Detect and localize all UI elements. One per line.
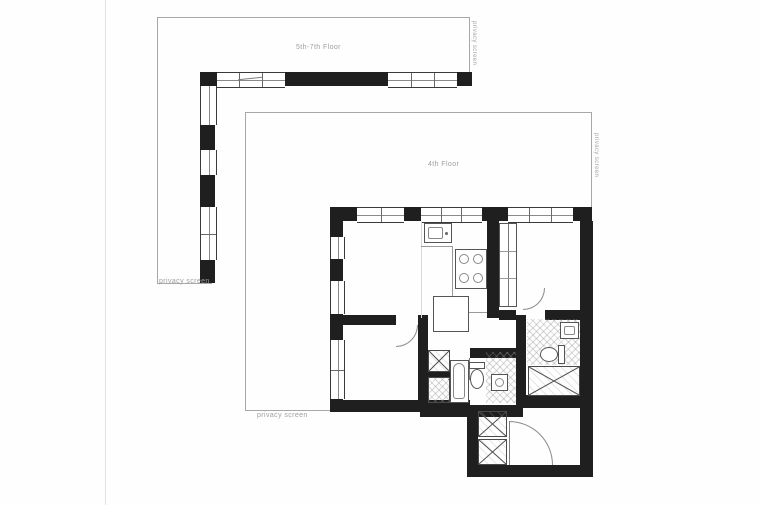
privacy-screen-label-terrace-bottom: privacy screen [159, 278, 210, 285]
floor4-outline-top [245, 112, 592, 113]
unit-wall-bottom-shower [523, 395, 593, 408]
partition-kitchen-bedroom [487, 221, 499, 318]
partition-living-bed2 [330, 315, 396, 325]
window-band [330, 281, 345, 314]
wardrobe-icon [499, 223, 517, 307]
storage-closet-icon [428, 377, 450, 403]
ensuite-toilet-icon [540, 347, 558, 362]
partition-bath-ensuite [516, 315, 526, 407]
entry-closet-icon [478, 439, 507, 465]
terrace-outline-right [469, 17, 470, 73]
wall-segment [200, 72, 217, 86]
floor4-outline-right [591, 112, 592, 222]
entry-door-swing-icon [509, 421, 553, 465]
floor4-outline-left [245, 112, 246, 410]
vanity-sink-icon [491, 374, 508, 391]
unit-wall-top [404, 207, 421, 221]
partition-laundry-column [418, 315, 428, 407]
floor4-outline-bottom [245, 410, 332, 411]
window-band [508, 207, 573, 223]
terrace-outline-top [157, 17, 470, 18]
wall-segment [200, 175, 215, 207]
bathtub-icon [450, 360, 469, 403]
window-band [357, 207, 404, 223]
unit-wall-right [580, 221, 593, 477]
ensuite-sink-icon [560, 322, 579, 339]
window-band [330, 237, 345, 259]
laundry-closet-icon [428, 350, 450, 372]
window-band [200, 86, 217, 125]
terrace-outline-left [157, 17, 158, 283]
wall-segment [285, 72, 388, 86]
window-band [388, 72, 457, 88]
ensuite-toilet-icon [558, 345, 565, 364]
entry-closet-icon [478, 411, 507, 437]
window-band [330, 340, 345, 399]
door-swing-icon [396, 325, 418, 347]
window-band [217, 72, 285, 88]
wall-segment [457, 72, 472, 86]
kitchen-boundary-line [421, 221, 422, 318]
kitchen-sink-icon [424, 223, 452, 243]
fridge-icon [433, 296, 469, 332]
counter-edge-line [421, 246, 452, 247]
privacy-screen-label-floor4-side: privacy screen [593, 133, 599, 177]
partition-bedroom-bottom [499, 310, 516, 320]
unit-wall-left [330, 259, 343, 281]
unit-wall-top [573, 207, 592, 221]
window-band [421, 207, 482, 223]
stove-icon [455, 249, 487, 289]
shower-icon [528, 366, 580, 396]
entry-door-leaf-line [509, 421, 510, 465]
window-band [200, 150, 217, 175]
privacy-screen-label-floor4-bottom: privacy screen [257, 412, 308, 419]
floor-5-7-label: 5th-7th Floor [296, 44, 341, 51]
unit-wall-top [482, 207, 508, 221]
unit-wall-left [330, 207, 343, 237]
privacy-screen-label-terrace-side: privacy screen [471, 21, 477, 65]
page-fold-line [105, 0, 106, 505]
door-swing-icon [523, 288, 545, 310]
toilet-icon [470, 369, 484, 389]
window-band [200, 207, 217, 260]
toilet-icon [469, 362, 485, 369]
entry-wall-bottom [467, 465, 593, 477]
wall-segment [200, 125, 215, 150]
floor-4-label: 4th Floor [428, 161, 459, 168]
floor-plan-page: 5th-7th Floor privacy screen privacy scr… [0, 0, 760, 505]
